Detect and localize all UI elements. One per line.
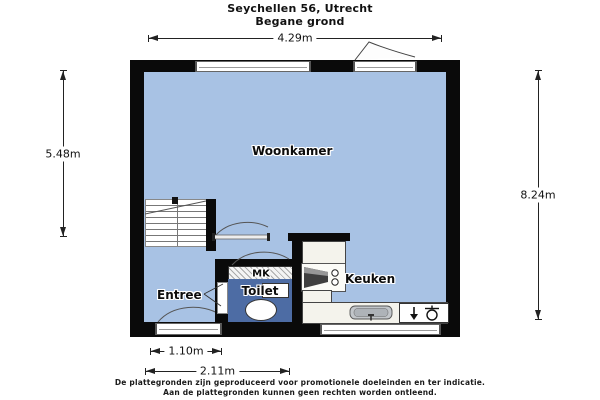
- front-door: [155, 323, 222, 335]
- entree-label: Entree: [157, 288, 202, 302]
- dimension-hall: 2.11m: [145, 367, 290, 376]
- wall-left: [130, 60, 144, 337]
- dimension-top: 4.29m: [148, 34, 442, 43]
- dimension-right: 8.24m: [534, 70, 543, 320]
- entree-leader-line: [203, 280, 225, 308]
- dimension-door-label: 1.10m: [164, 345, 207, 358]
- stairs-post: [172, 197, 178, 204]
- dimension-door: 1.10m: [150, 347, 222, 356]
- floor-plan: MK Toilet: [0, 0, 600, 400]
- boiler-icon: [399, 303, 449, 323]
- mk-label: MK: [252, 268, 270, 279]
- dimension-top-label: 4.29m: [273, 32, 316, 45]
- stove-icon: [301, 263, 346, 292]
- disclaimer-line-1: De plattegronden zijn geproduceerd voor …: [0, 378, 600, 387]
- kitchen-window: [320, 324, 441, 335]
- dimension-hall-label: 2.11m: [196, 365, 239, 378]
- keuken-label: Keuken: [345, 272, 395, 286]
- kitchen-wall-top: [288, 233, 350, 241]
- mk-door-swing-icon: [229, 246, 292, 266]
- toilet-label: Toilet: [242, 284, 279, 298]
- toilet-bowl-icon: [245, 299, 277, 321]
- toilet-room: Toilet: [228, 279, 292, 322]
- woonkamer-label: Woonkamer: [252, 144, 332, 158]
- dimension-right-label: 8.24m: [517, 188, 558, 203]
- dimension-left: 5.48m: [59, 70, 68, 237]
- window-top-left: [195, 61, 311, 72]
- window-top-right: [353, 61, 417, 72]
- interior-door-icon: [212, 216, 272, 242]
- kitchen-sink-icon: [349, 305, 393, 321]
- floorplan-page: Seychellen 56, Utrecht Begane grond: [0, 0, 600, 400]
- dimension-left-label: 5.48m: [42, 146, 83, 161]
- wall-right: [446, 60, 460, 337]
- disclaimer-line-2: Aan de plattegronden kunnen geen rechten…: [0, 388, 600, 397]
